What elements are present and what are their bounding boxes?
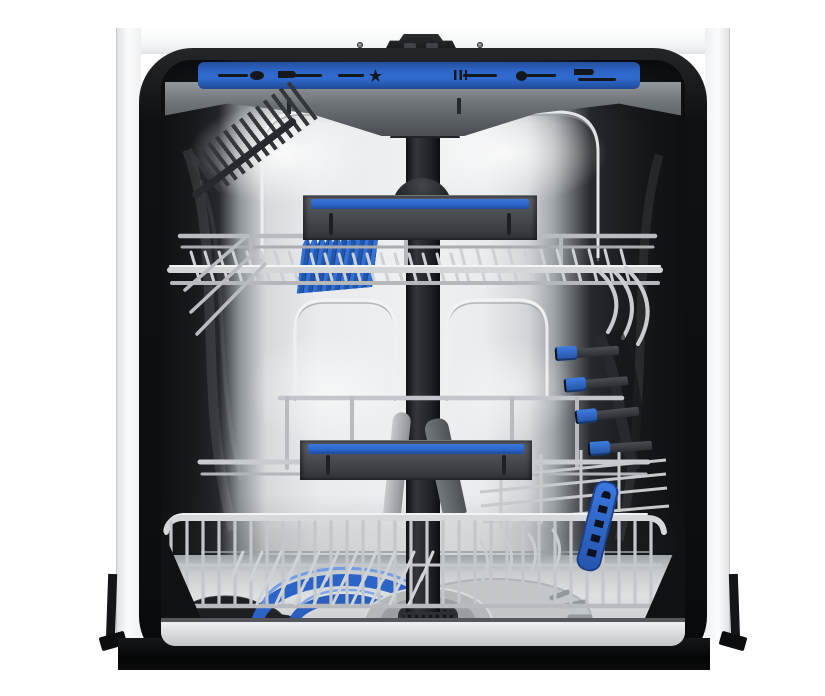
lower-handle-blue-stripe	[308, 444, 524, 454]
blue-knife-clip	[555, 342, 620, 362]
side-rail-clip-group	[551, 340, 685, 472]
front-sill	[161, 622, 685, 646]
lower-rack-handle	[300, 440, 532, 480]
upper-handle-blue-stripe	[311, 199, 529, 209]
upper-rack-handle	[303, 195, 537, 240]
blue-knife-clip	[563, 372, 628, 394]
cabinet-right-edge	[705, 28, 730, 640]
handle-slot	[326, 455, 330, 475]
upper-rack-wires	[170, 236, 660, 344]
right-hinge-foot	[719, 631, 748, 652]
handle-slot	[329, 213, 333, 235]
dishwasher-product-photo	[0, 0, 825, 696]
right-hinge	[729, 574, 740, 642]
blue-knife-clip	[588, 437, 653, 457]
tub-interior	[161, 60, 685, 646]
handle-slot	[507, 213, 511, 235]
cabinet-left-edge	[116, 28, 141, 640]
handle-slot	[502, 455, 506, 475]
blue-knife-clip	[574, 403, 639, 426]
